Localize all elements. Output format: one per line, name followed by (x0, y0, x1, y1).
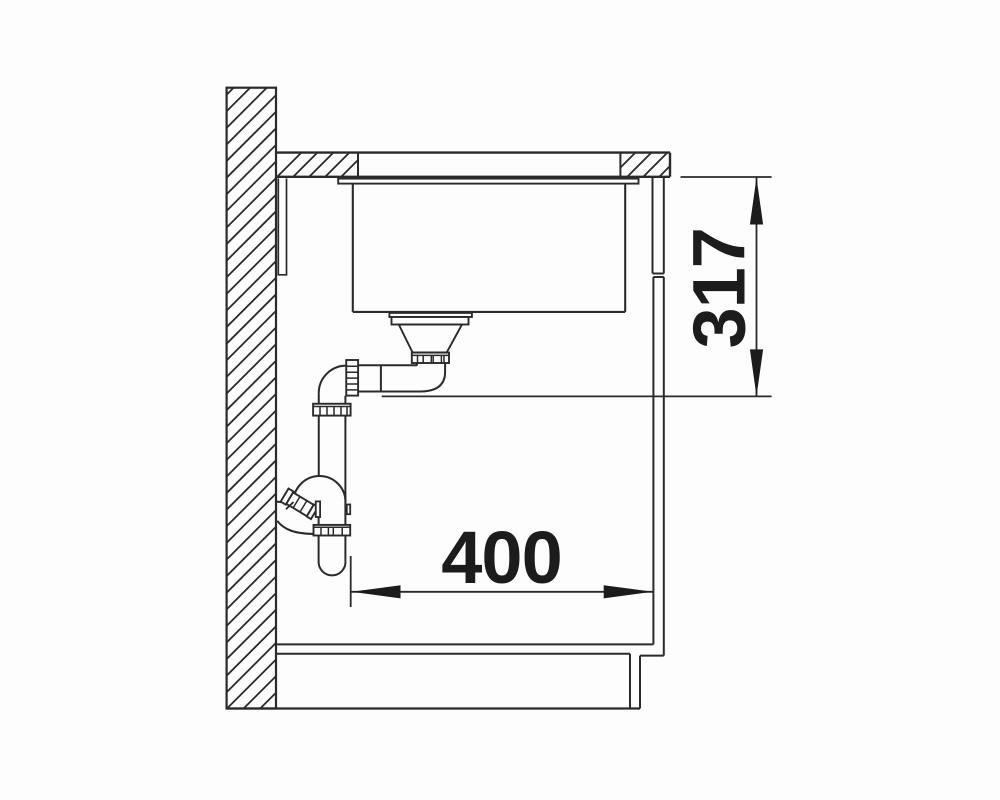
svg-text:317: 317 (677, 228, 760, 348)
svg-text:400: 400 (441, 516, 561, 599)
